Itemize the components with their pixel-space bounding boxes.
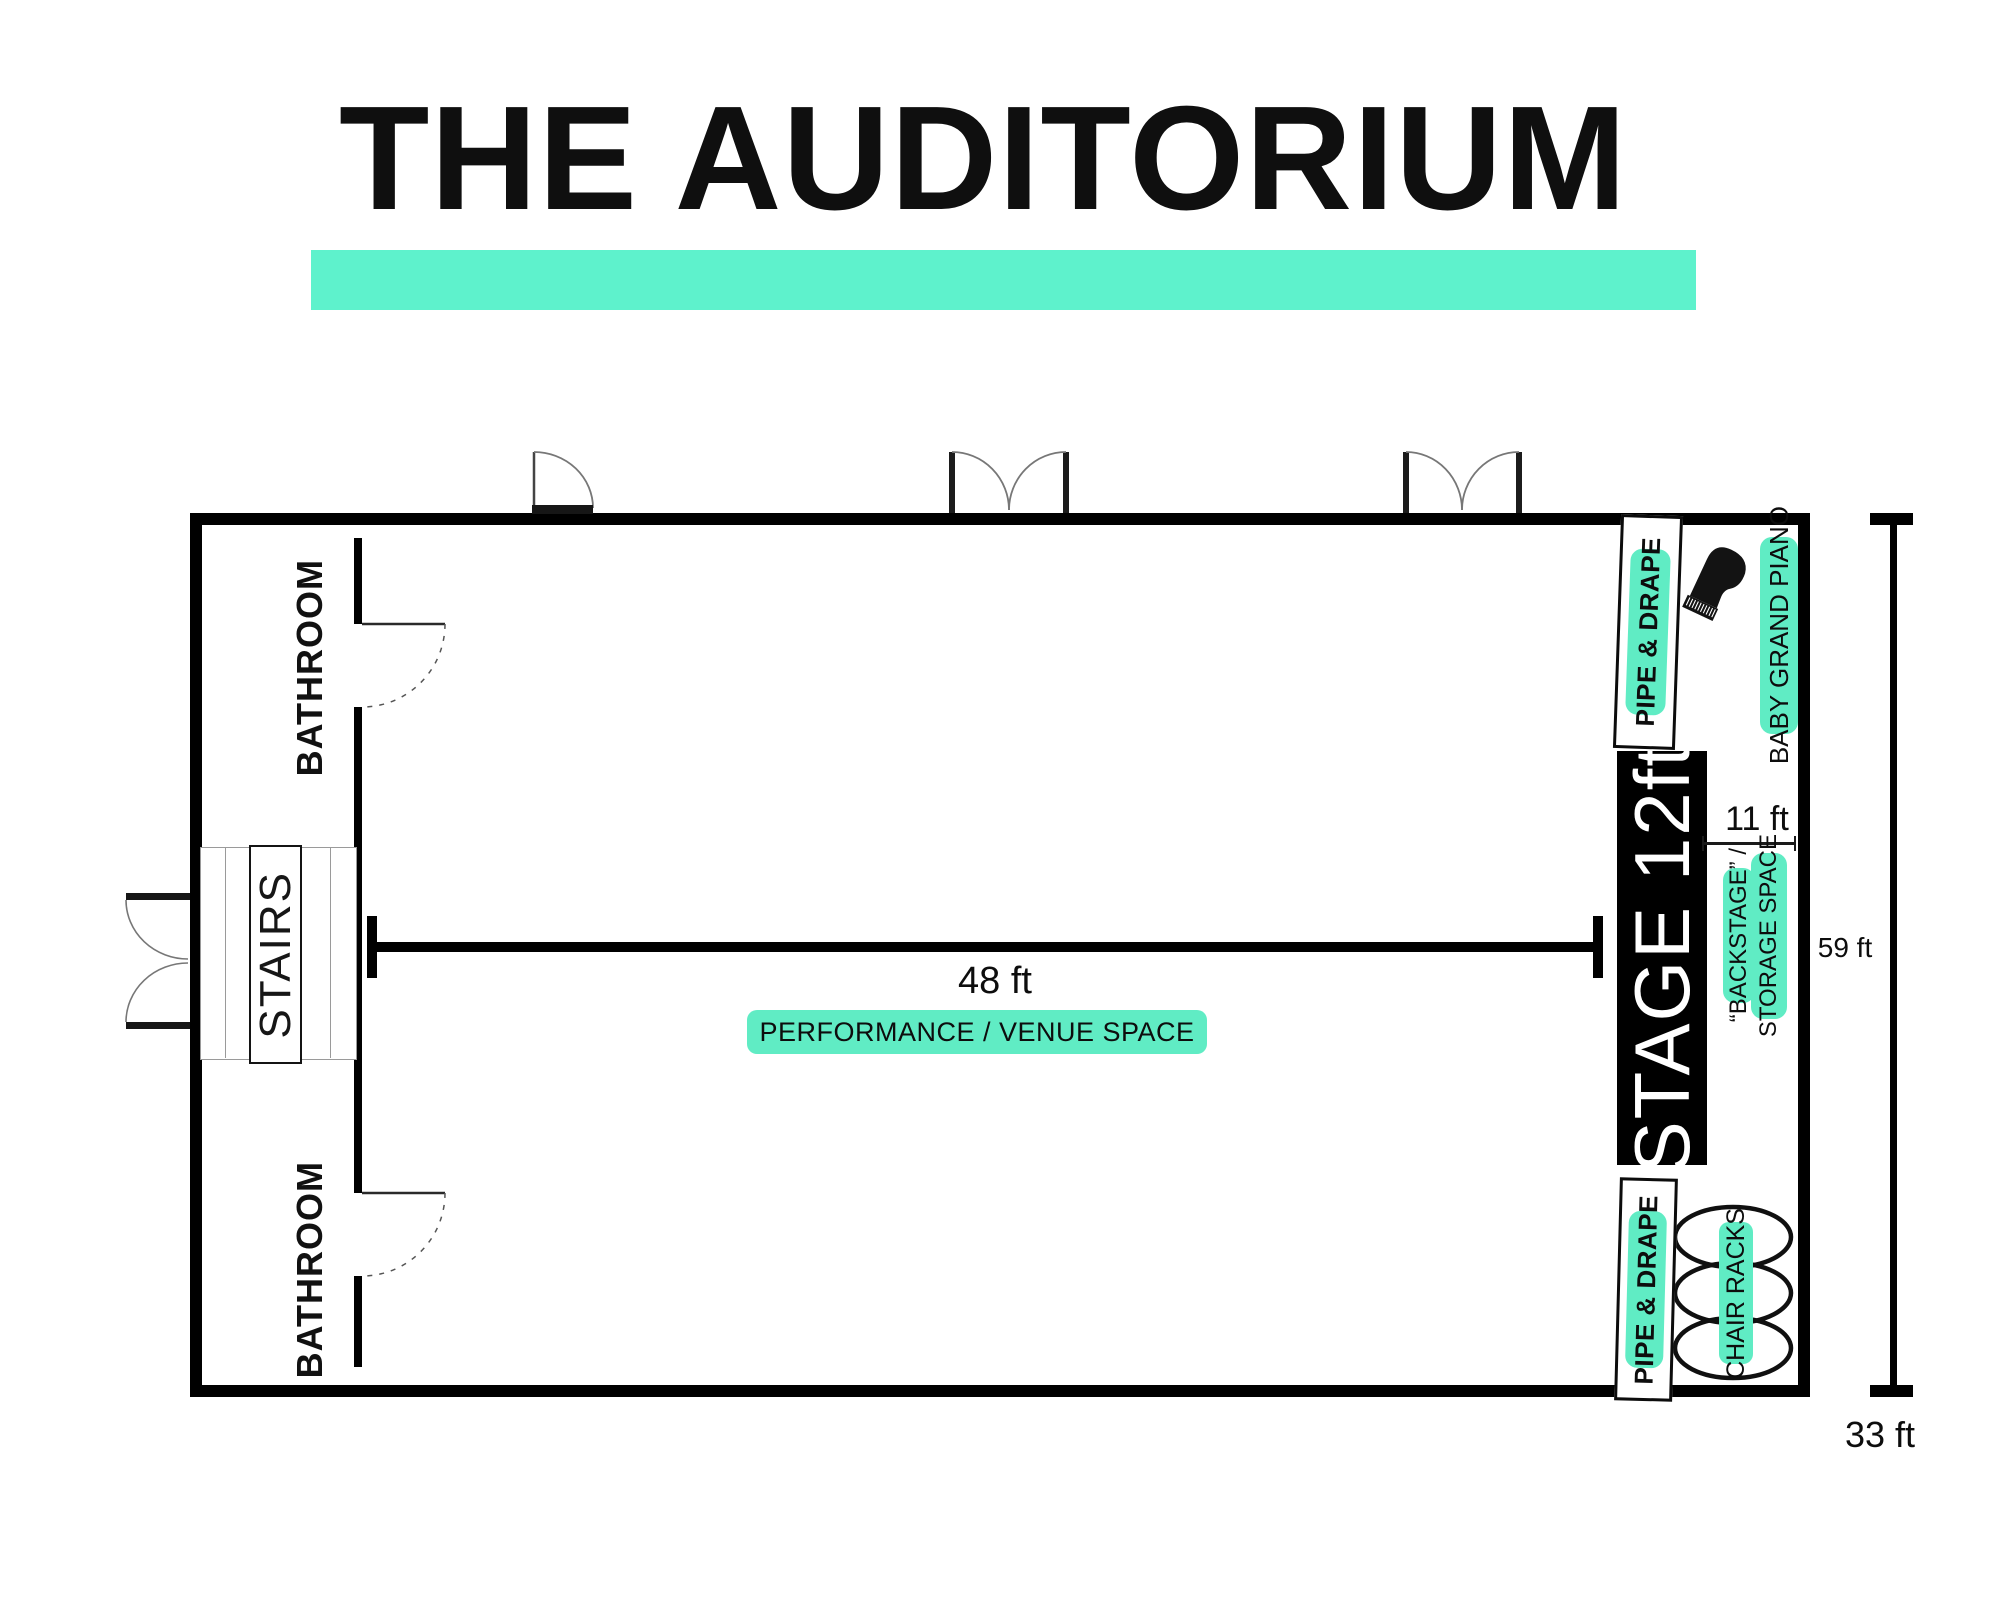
stage-label: STAGE 12ft bbox=[1617, 743, 1708, 1173]
stairs-label: STAIRS bbox=[251, 871, 301, 1039]
pipe-drape-top-pill: PIPE & DRAPE bbox=[1625, 548, 1671, 715]
backstage-storage-badge: “BACKSTAGE” / STORAGE SPACE bbox=[1723, 853, 1789, 1019]
dim-11-tick-right bbox=[1794, 836, 1796, 851]
dim-59-cap-bottom bbox=[1870, 1385, 1913, 1397]
dim-59-label: 59 ft bbox=[1800, 932, 1890, 964]
dim-33-label: 33 ft bbox=[1810, 1414, 1950, 1456]
dim-48-endcap-right bbox=[1593, 916, 1603, 978]
pipe-drape-top-box: PIPE & DRAPE bbox=[1613, 514, 1683, 750]
bathroom-bottom-label: BATHROOM bbox=[289, 1161, 331, 1378]
bathroom-bottom-area: BATHROOM bbox=[283, 1160, 337, 1380]
piano-label: BABY GRAND PIANO bbox=[1764, 506, 1795, 764]
bathroom-door-icon bbox=[362, 1193, 445, 1276]
title-accent-bar bbox=[311, 250, 1696, 310]
stairs-label-box: STAIRS bbox=[249, 845, 302, 1064]
dim-48-line bbox=[372, 942, 1600, 952]
backstage-line2-pill: STORAGE SPACE bbox=[1751, 853, 1787, 1019]
stair-tread-line bbox=[330, 848, 331, 1058]
grand-piano-icon bbox=[1682, 541, 1752, 625]
dim-59-cap-top bbox=[1870, 513, 1913, 525]
bathroom-door-icon bbox=[362, 624, 445, 707]
bathroom-top-area: BATHROOM bbox=[283, 558, 337, 778]
bathroom-top-label: BATHROOM bbox=[289, 559, 331, 776]
single-door-icon bbox=[532, 452, 593, 514]
backstage-line1: “BACKSTAGE” / bbox=[1725, 848, 1753, 1022]
dim-48-label: 48 ft bbox=[895, 960, 1095, 1003]
chair-racks-badge: CHAIR RACKS bbox=[1719, 1222, 1753, 1364]
divider-wall-segment bbox=[354, 538, 362, 624]
dim-59-line bbox=[1890, 513, 1897, 1397]
pipe-drape-bottom-pill: PIPE & DRAPE bbox=[1625, 1211, 1667, 1369]
wall-top bbox=[190, 513, 1810, 525]
pipe-drape-bottom-box: PIPE & DRAPE bbox=[1614, 1177, 1678, 1401]
page-title: THE AUDITORIUM bbox=[339, 96, 1629, 226]
backstage-line2: STORAGE SPACE bbox=[1755, 834, 1783, 1037]
double-door-icon bbox=[949, 452, 1069, 513]
stage-area: STAGE 12ft bbox=[1617, 751, 1707, 1165]
piano-badge: BABY GRAND PIANO bbox=[1760, 537, 1798, 734]
wall-bottom bbox=[190, 1385, 1810, 1397]
pipe-drape-bottom-label: PIPE & DRAPE bbox=[1628, 1194, 1664, 1384]
exterior-double-door-icon bbox=[126, 893, 190, 1029]
floor-plan-canvas: THE AUDITORIUM STAIRS bbox=[0, 0, 2000, 1600]
performance-space-badge: PERFORMANCE / VENUE SPACE bbox=[747, 1010, 1207, 1054]
performance-space-label: PERFORMANCE / VENUE SPACE bbox=[759, 1017, 1194, 1048]
dim-11-tick-left bbox=[1702, 836, 1704, 851]
chair-racks-label: CHAIR RACKS bbox=[1722, 1208, 1751, 1379]
stair-tread-line bbox=[225, 848, 226, 1058]
double-door-icon bbox=[1403, 452, 1522, 513]
pipe-drape-top-label: PIPE & DRAPE bbox=[1629, 537, 1667, 727]
divider-wall-segment bbox=[354, 1276, 362, 1367]
